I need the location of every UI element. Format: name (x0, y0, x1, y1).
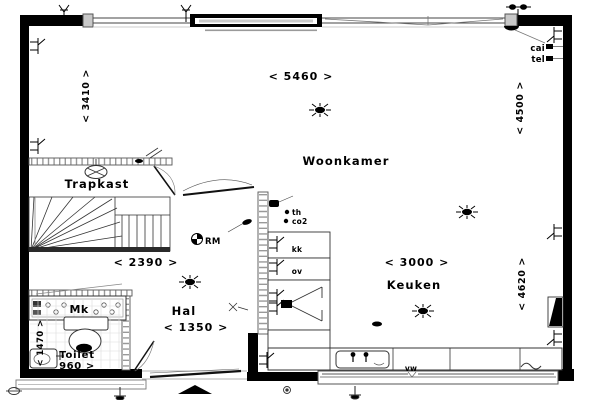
entrance-arrow-icon (178, 385, 212, 394)
switch-icon (229, 303, 248, 311)
socket-icon (547, 27, 562, 43)
room-label-trapkast: Trapkast (65, 177, 130, 191)
label-oven: ov (292, 267, 302, 276)
staircase (29, 197, 170, 252)
room-label-keuken: Keuken (387, 278, 442, 292)
smoke-detector-icon (192, 234, 203, 245)
room-label-toilet: Toilet (59, 350, 95, 361)
dimension-hall-width: < 1350 > (164, 321, 229, 334)
window-woonkamer (322, 14, 517, 27)
dimension-total-width: < 5460 > (269, 70, 334, 83)
label-thermostat: th (292, 208, 301, 217)
label-fridge: kk (292, 245, 303, 254)
label-smoke-detector: RM (205, 237, 221, 247)
dimension-kitchen-width: < 3000 > (385, 256, 450, 269)
door-toilet (134, 341, 154, 371)
cai-tel-outlets (546, 44, 563, 61)
dimension-right-upper-height: < 4500 > (515, 81, 526, 135)
room-label-meterkast: Mk (69, 303, 88, 316)
light-point-icon (309, 103, 331, 117)
label-co2-sensor: co2 (292, 217, 307, 226)
dimension-toilet-depth: < 1470 > (36, 319, 46, 366)
front-door (142, 369, 247, 394)
light-point-icon (456, 205, 478, 219)
light-point-icon (412, 304, 434, 318)
dimension-left-height: < 3410 > (81, 69, 92, 123)
label-cable-outlet: cai (530, 44, 545, 54)
toilet-icon (64, 317, 108, 353)
dimension-right-lower-height: < 4620 > (517, 257, 528, 311)
room-label-woonkamer: Woonkamer (302, 154, 389, 168)
window-trapkast (83, 14, 190, 27)
wall-vent-icon (504, 26, 545, 43)
door-trapkast (154, 166, 175, 195)
thermostat-co2-icons (269, 196, 293, 223)
floor-plan-drawing: Woonkamer Keuken Trapkast Hal Toilet Mk … (0, 0, 600, 400)
floor-plan: Woonkamer Keuken Trapkast Hal Toilet Mk … (0, 0, 600, 400)
window-keuken (318, 371, 558, 384)
door-woonkamer (183, 180, 254, 195)
light-point-icon (179, 275, 201, 289)
dimension-toilet-width: 960 > (59, 361, 95, 372)
outdoor-light-icon (181, 5, 191, 22)
label-telephone-outlet: tel (531, 55, 545, 65)
label-dishwasher: vw (405, 364, 417, 373)
floor-outlet-icon (372, 322, 382, 327)
sink-icon (336, 351, 389, 368)
radiator-icon (548, 297, 563, 327)
socket-icon (30, 38, 45, 54)
socket-icon (547, 330, 562, 346)
socket-icon (30, 138, 45, 154)
switch-icon (228, 218, 253, 232)
dimension-stairs-width: < 2390 > (114, 256, 179, 269)
socket-icon (547, 224, 562, 240)
sill-band-toilet (16, 380, 146, 389)
room-label-hal: Hal (172, 304, 197, 318)
outdoor-tap-icon (349, 386, 361, 399)
